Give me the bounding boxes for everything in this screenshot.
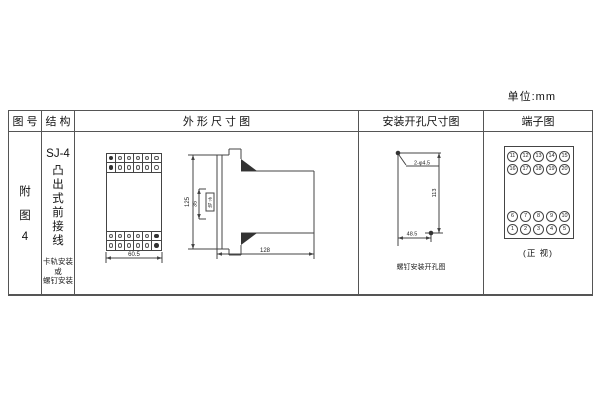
terminal-cell bbox=[107, 232, 116, 241]
screw-terminal-filled bbox=[154, 243, 159, 248]
terminal-circle: 16 bbox=[507, 164, 518, 175]
spec-table: 图 号 结 构 外 形 尺 寸 图 安装开孔尺寸图 端子图 附 图 4 SJ-4… bbox=[8, 110, 593, 296]
install-hole-drawing: 2-φ4.5 113 48.5 螺钉安装开孔图 bbox=[359, 132, 483, 295]
structure-char: 接 bbox=[52, 220, 64, 234]
terminal-row-1: 11 12 13 14 15 bbox=[507, 151, 570, 162]
screw-terminal bbox=[127, 243, 132, 248]
terminal-cell bbox=[107, 154, 116, 163]
mounting-hole-bottom bbox=[429, 231, 434, 236]
terminal-cell bbox=[143, 154, 152, 163]
terminal-cell bbox=[125, 241, 134, 250]
terminal-circle: 14 bbox=[546, 151, 557, 162]
mounting-hole-top bbox=[396, 151, 401, 156]
screw-terminal bbox=[127, 234, 132, 239]
figure-char-3: 4 bbox=[22, 231, 28, 243]
unit-label: 单位:mm bbox=[508, 88, 556, 104]
screw-terminal bbox=[145, 156, 150, 161]
screw-terminal-filled bbox=[154, 234, 159, 239]
outline-drawing-cell: 60.5 125 35 卡 轨 128 bbox=[74, 132, 358, 294]
header-outline: 外 形 尺 寸 图 bbox=[74, 111, 358, 132]
structure-char: 出 bbox=[52, 178, 64, 192]
hole-spec-label: 2-φ4.5 bbox=[414, 161, 430, 167]
terminal-cell bbox=[125, 232, 134, 241]
screw-terminal bbox=[109, 234, 114, 239]
screw-terminal bbox=[154, 165, 159, 170]
structure-char: 前 bbox=[52, 206, 64, 220]
structure-char: 线 bbox=[52, 234, 64, 248]
screw-terminal-filled bbox=[109, 156, 114, 161]
rail-label-char1: 卡 bbox=[208, 196, 213, 203]
terminal-circle: 19 bbox=[546, 164, 557, 175]
screw-terminal bbox=[154, 156, 159, 161]
terminal-circle: 8 bbox=[533, 211, 544, 222]
terminal-row-4: 1 2 3 4 5 bbox=[507, 224, 570, 235]
drawing-sheet: 单位:mm 图 号 结 构 外 形 尺 寸 图 安装开孔尺寸图 端子图 附 图 … bbox=[0, 0, 600, 400]
figure-char-1: 附 bbox=[19, 183, 31, 199]
terminal-circle: 10 bbox=[559, 211, 570, 222]
structure-char: 凸 bbox=[52, 164, 64, 178]
terminal-cell bbox=[152, 232, 161, 241]
install-caption: 螺钉安装开孔图 bbox=[397, 262, 446, 271]
terminal-cell bbox=[134, 163, 143, 172]
dim-rail-span: 35 bbox=[193, 201, 199, 207]
terminal-cell bbox=[143, 241, 152, 250]
terminal-circle: 3 bbox=[533, 224, 544, 235]
terminal-circle: 1 bbox=[507, 224, 518, 235]
terminal-block-bottom bbox=[106, 231, 162, 251]
terminal-cell bbox=[152, 241, 161, 250]
screw-terminal bbox=[118, 156, 123, 161]
terminal-cell bbox=[125, 154, 134, 163]
terminal-cell bbox=[116, 232, 125, 241]
screw-terminal-filled bbox=[109, 165, 114, 170]
dim-vertical: 113 bbox=[432, 189, 438, 198]
terminal-cell bbox=[134, 241, 143, 250]
terminal-cell bbox=[143, 232, 152, 241]
structure-cell: SJ-4 凸 出 式 前 接 线 卡轨安装 或 螺钉安装 bbox=[41, 132, 74, 294]
screw-terminal bbox=[136, 243, 141, 248]
screw-terminal bbox=[127, 156, 132, 161]
header-structure: 结 构 bbox=[41, 111, 74, 132]
structure-char: 式 bbox=[52, 192, 64, 206]
screw-terminal bbox=[118, 243, 123, 248]
clip-wedges bbox=[241, 159, 257, 245]
header-terminal: 端子图 bbox=[483, 111, 592, 132]
terminal-cell bbox=[134, 154, 143, 163]
figure-number-cell: 附 图 4 bbox=[9, 132, 41, 294]
terminal-circle: 20 bbox=[559, 164, 570, 175]
screw-terminal bbox=[136, 234, 141, 239]
terminal-diagram-cell: 11 12 13 14 15 16 17 18 19 20 6 7 8 9 10 bbox=[483, 132, 592, 294]
mounting-note-line3: 螺钉安装 bbox=[43, 276, 73, 286]
terminal-circle: 18 bbox=[533, 164, 544, 175]
terminal-circle: 13 bbox=[533, 151, 544, 162]
screw-terminal bbox=[136, 165, 141, 170]
terminal-circle: 2 bbox=[520, 224, 531, 235]
header-figure-no: 图 号 bbox=[9, 111, 41, 132]
screw-terminal bbox=[136, 156, 141, 161]
terminal-block-top bbox=[106, 153, 162, 173]
screw-terminal bbox=[145, 165, 150, 170]
rail-label-char2: 轨 bbox=[208, 202, 213, 209]
model-label: SJ-4 bbox=[46, 146, 70, 162]
dim-depth: 128 bbox=[260, 248, 271, 254]
header-install: 安装开孔尺寸图 bbox=[358, 111, 483, 132]
screw-terminal bbox=[127, 165, 132, 170]
dim-horizontal: 48.5 bbox=[407, 232, 418, 238]
mounting-note: 卡轨安装 或 螺钉安装 bbox=[43, 257, 73, 286]
terminal-circle: 12 bbox=[520, 151, 531, 162]
screw-terminal bbox=[145, 234, 150, 239]
mounting-note-line1: 卡轨安装 bbox=[43, 257, 73, 267]
terminal-cell bbox=[116, 163, 125, 172]
terminal-cell bbox=[116, 241, 125, 250]
dim-height: 125 bbox=[185, 196, 191, 207]
screw-terminal bbox=[118, 234, 123, 239]
terminal-circle: 4 bbox=[546, 224, 557, 235]
terminal-circle: 9 bbox=[546, 211, 557, 222]
terminal-cell bbox=[107, 163, 116, 172]
terminal-circle: 5 bbox=[559, 224, 570, 235]
screw-terminal bbox=[118, 165, 123, 170]
terminal-cell bbox=[134, 232, 143, 241]
terminal-circle: 17 bbox=[520, 164, 531, 175]
terminal-circle: 15 bbox=[559, 151, 570, 162]
relay-front-body bbox=[106, 173, 162, 231]
terminal-cell bbox=[116, 154, 125, 163]
dim-front-width: 60.5 bbox=[128, 252, 140, 258]
terminal-row-2: 16 17 18 19 20 bbox=[507, 164, 570, 175]
terminal-circle: 7 bbox=[520, 211, 531, 222]
terminal-cell bbox=[125, 163, 134, 172]
mounting-note-line2: 或 bbox=[43, 267, 73, 277]
screw-terminal bbox=[109, 243, 114, 248]
terminal-circle: 6 bbox=[507, 211, 518, 222]
terminal-cell bbox=[152, 154, 161, 163]
terminal-cell bbox=[143, 163, 152, 172]
terminal-circle: 11 bbox=[507, 151, 518, 162]
install-drawing-cell: 2-φ4.5 113 48.5 螺钉安装开孔图 bbox=[358, 132, 483, 294]
figure-char-2: 图 bbox=[19, 207, 31, 223]
terminal-cell bbox=[107, 241, 116, 250]
terminal-row-3: 6 7 8 9 10 bbox=[507, 211, 570, 222]
screw-terminal bbox=[145, 243, 150, 248]
terminal-cell bbox=[152, 163, 161, 172]
terminal-caption: (正 视) bbox=[484, 247, 592, 259]
